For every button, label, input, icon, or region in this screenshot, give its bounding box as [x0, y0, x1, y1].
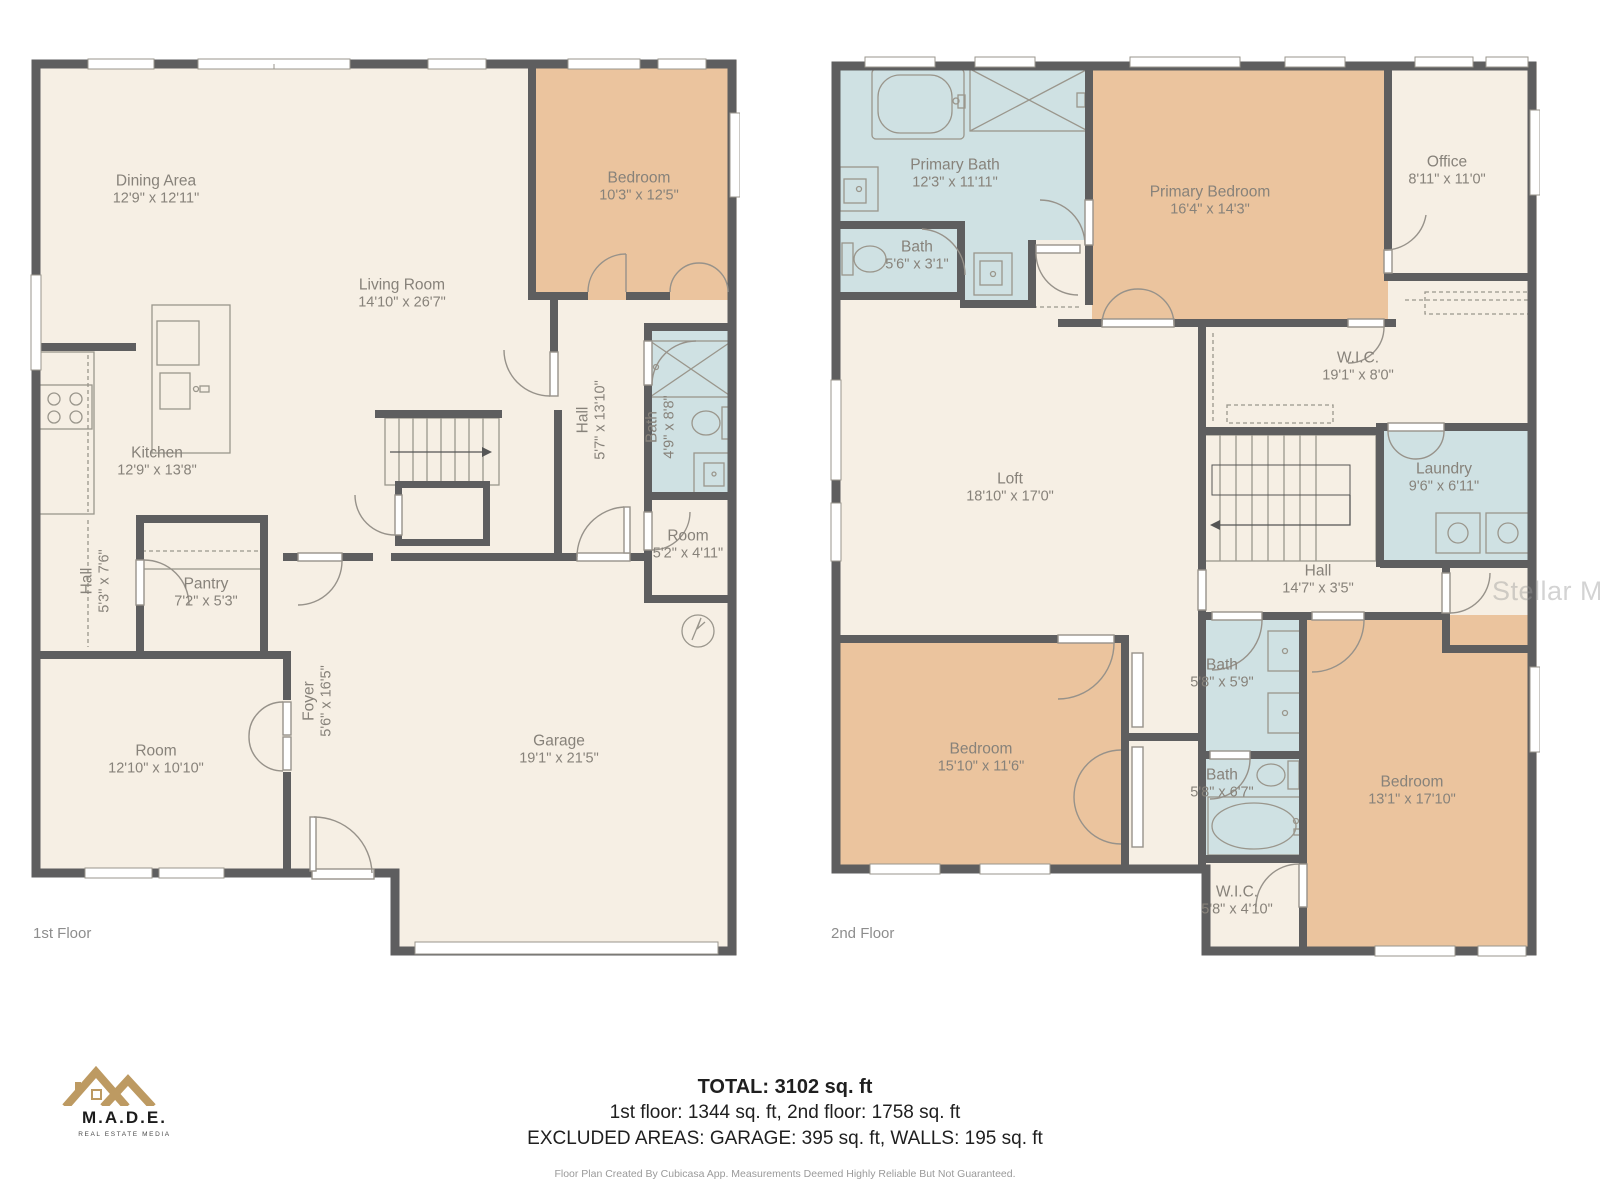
logo-tagline: REAL ESTATE MEDIA	[62, 1131, 187, 1138]
floor-tag-2: 2nd Floor	[831, 925, 894, 942]
stellar-mls-watermark: Stellar MLS	[1492, 576, 1600, 607]
logo-name: M.A.D.E.	[62, 1108, 187, 1128]
summary-footer: TOTAL: 3102 sq. ft 1st floor: 1344 sq. f…	[0, 1076, 1570, 1180]
excluded-areas-text: EXCLUDED AREAS: GARAGE: 395 sq. ft, WALL…	[0, 1128, 1570, 1150]
floor-tag-1: 1st Floor	[33, 925, 91, 942]
total-area-text: TOTAL: 3102 sq. ft	[0, 1076, 1570, 1099]
second-floor-svg	[830, 55, 1540, 960]
first-floor-svg	[30, 55, 740, 960]
roof-logo-icon	[62, 1062, 158, 1106]
floor-plan-page: Dining Area 12'9" x 12'11" Bedroom 10'3"…	[0, 0, 1600, 1200]
first-floor-rooms	[32, 60, 737, 955]
floor-areas-text: 1st floor: 1344 sq. ft, 2nd floor: 1758 …	[0, 1102, 1570, 1124]
disclaimer-text: Floor Plan Created By Cubicasa App. Meas…	[0, 1168, 1570, 1180]
second-floor-rooms	[832, 62, 1537, 955]
made-logo: M.A.D.E. REAL ESTATE MEDIA	[62, 1062, 187, 1138]
